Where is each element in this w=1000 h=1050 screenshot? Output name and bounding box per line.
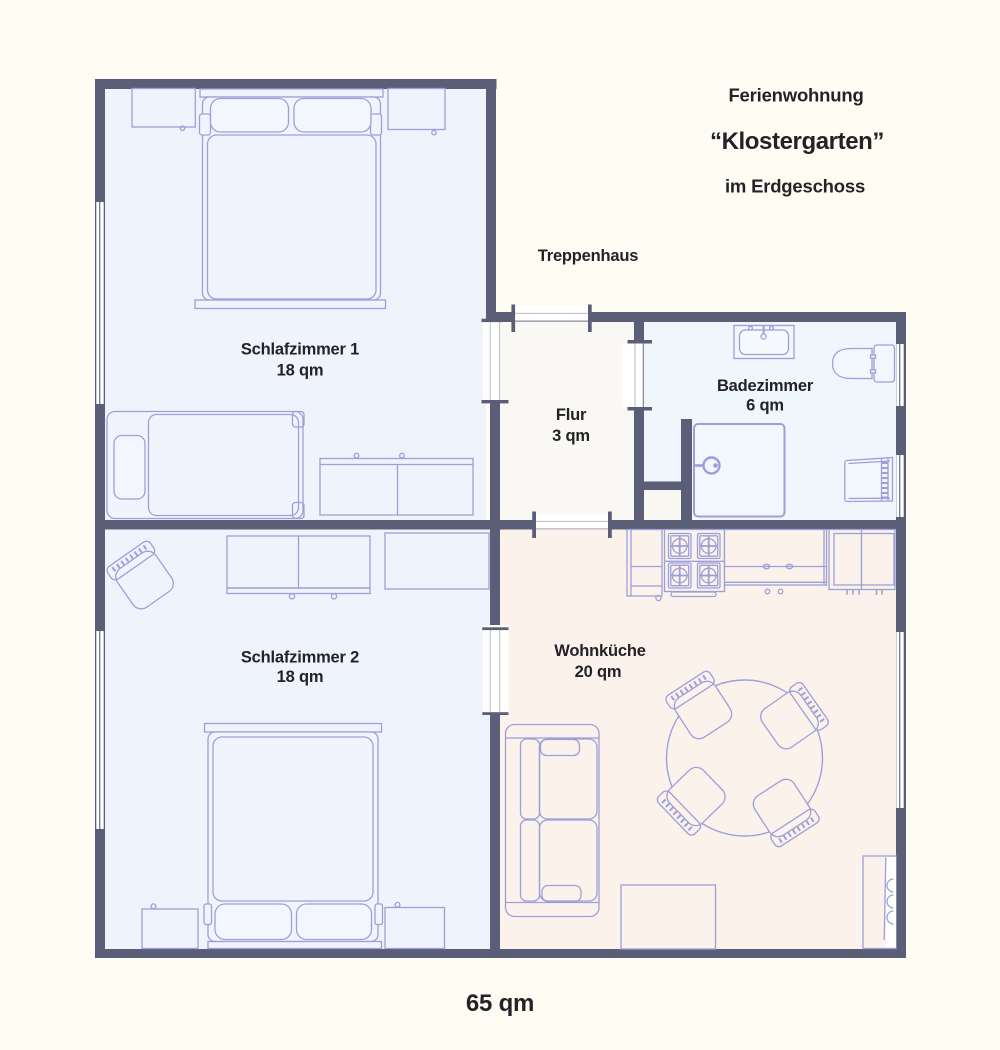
svg-text:Schlafzimmer 1: Schlafzimmer 1: [241, 341, 359, 359]
svg-text:Wohnküche: Wohnküche: [554, 642, 645, 660]
svg-text:Flur: Flur: [556, 406, 587, 424]
svg-text:18 qm: 18 qm: [277, 362, 324, 380]
svg-text:Treppenhaus: Treppenhaus: [538, 247, 639, 265]
svg-text:18 qm: 18 qm: [277, 668, 324, 686]
svg-text:3 qm: 3 qm: [552, 427, 590, 445]
svg-text:“Klostergarten”: “Klostergarten”: [710, 128, 884, 155]
svg-text:Ferienwohnung: Ferienwohnung: [728, 85, 863, 106]
svg-text:6 qm: 6 qm: [746, 397, 784, 415]
svg-text:Badezimmer: Badezimmer: [717, 377, 814, 395]
svg-text:20 qm: 20 qm: [575, 663, 622, 681]
svg-text:65 qm: 65 qm: [466, 990, 534, 1017]
svg-text:Schlafzimmer 2: Schlafzimmer 2: [241, 649, 359, 667]
svg-text:im Erdgeschoss: im Erdgeschoss: [725, 176, 865, 197]
